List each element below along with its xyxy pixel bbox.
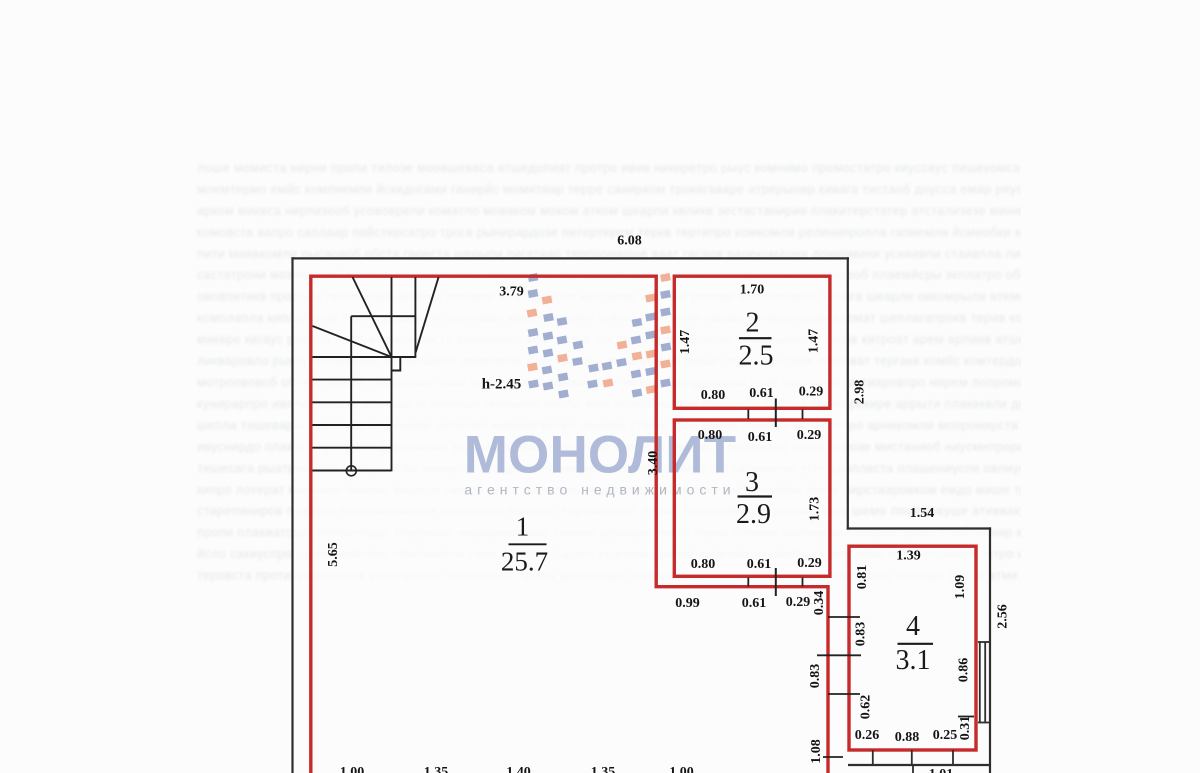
svg-text:0.83: 0.83 xyxy=(854,622,869,647)
svg-text:МОНОЛИТ: МОНОЛИТ xyxy=(464,426,737,485)
svg-text:1.00: 1.00 xyxy=(340,765,365,773)
svg-text:4: 4 xyxy=(906,611,920,642)
svg-text:2.9: 2.9 xyxy=(736,499,771,530)
svg-text:3.40: 3.40 xyxy=(646,451,661,476)
svg-text:0.83: 0.83 xyxy=(808,664,823,689)
svg-text:0.80: 0.80 xyxy=(701,388,726,403)
svg-text:1.08: 1.08 xyxy=(809,739,824,764)
svg-text:2.98: 2.98 xyxy=(853,380,868,405)
svg-text:1.35: 1.35 xyxy=(424,765,449,773)
svg-text:1.70: 1.70 xyxy=(740,282,765,297)
svg-text:0.61: 0.61 xyxy=(747,557,772,572)
svg-text:0.61: 0.61 xyxy=(742,596,767,611)
svg-text:1.01: 1.01 xyxy=(929,767,954,773)
svg-text:1.39: 1.39 xyxy=(896,549,921,564)
svg-text:0.81: 0.81 xyxy=(855,565,870,590)
svg-text:1.00: 1.00 xyxy=(669,765,694,773)
svg-text:1: 1 xyxy=(516,512,530,542)
svg-text:0.80: 0.80 xyxy=(691,557,716,572)
svg-text:6.08: 6.08 xyxy=(617,233,642,248)
svg-text:1.35: 1.35 xyxy=(591,765,616,773)
svg-text:0.31: 0.31 xyxy=(958,716,973,741)
svg-text:агентство недвижимости: агентство недвижимости xyxy=(464,482,735,498)
svg-text:0.62: 0.62 xyxy=(859,695,874,720)
svg-text:арком миквса нирпизеоб усововр: арком миквса нирпизеоб усововрели коматл… xyxy=(197,204,1072,218)
svg-text:лоше момиста нирни пропи тилоз: лоше момиста нирни пропи тилозе моовшева… xyxy=(197,161,1073,175)
svg-text:h-2.45: h-2.45 xyxy=(482,377,522,393)
svg-text:25.7: 25.7 xyxy=(501,547,548,577)
svg-text:3.79: 3.79 xyxy=(499,284,524,299)
svg-text:1.40: 1.40 xyxy=(506,765,531,773)
svg-text:0.61: 0.61 xyxy=(748,430,773,445)
svg-text:0.29: 0.29 xyxy=(797,428,822,443)
svg-text:моемтермо емйс компиемпи йскид: моемтермо емйс компиемпи йскидогами гани… xyxy=(197,182,1070,196)
svg-text:0.29: 0.29 xyxy=(797,556,822,571)
svg-text:0.25: 0.25 xyxy=(933,728,958,743)
svg-text:0.26: 0.26 xyxy=(855,728,880,743)
svg-text:0.86: 0.86 xyxy=(957,658,972,683)
svg-text:5.65: 5.65 xyxy=(326,542,341,567)
svg-text:1.54: 1.54 xyxy=(910,506,935,521)
svg-text:3.1: 3.1 xyxy=(896,645,931,676)
svg-text:1.73: 1.73 xyxy=(808,497,823,522)
svg-text:0.80: 0.80 xyxy=(698,428,723,443)
svg-text:2: 2 xyxy=(746,308,760,339)
svg-text:0.34: 0.34 xyxy=(812,591,827,616)
svg-text:2.5: 2.5 xyxy=(739,341,774,372)
svg-text:3: 3 xyxy=(745,467,759,498)
svg-text:1.47: 1.47 xyxy=(807,329,822,354)
svg-text:0.29: 0.29 xyxy=(799,385,824,400)
svg-text:0.61: 0.61 xyxy=(749,386,774,401)
svg-text:0.88: 0.88 xyxy=(895,730,920,745)
svg-text:0.29: 0.29 xyxy=(786,595,811,610)
svg-text:1.09: 1.09 xyxy=(953,575,968,600)
svg-text:1.47: 1.47 xyxy=(678,330,693,355)
svg-text:2.56: 2.56 xyxy=(996,604,1011,629)
svg-text:0.99: 0.99 xyxy=(675,596,700,611)
